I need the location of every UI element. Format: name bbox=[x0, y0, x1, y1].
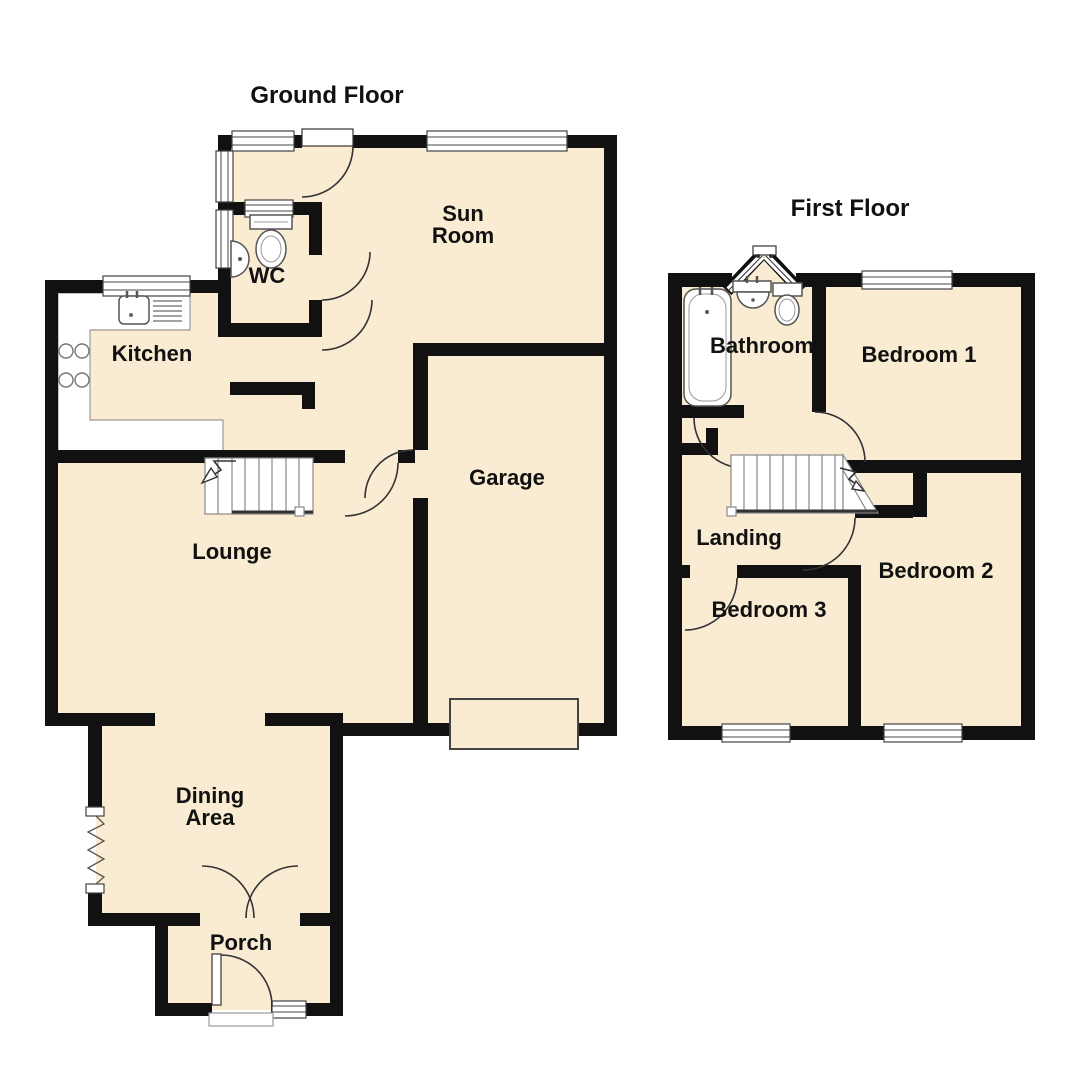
window-bedroom3 bbox=[722, 724, 790, 742]
first-floor: First Floor Bathroom Bedroom 1 Landing B… bbox=[668, 195, 1035, 742]
label-dining-line2: Area bbox=[186, 805, 236, 830]
ground-floor: Ground Floor Sun Room WC Kitchen Garage … bbox=[45, 82, 617, 1026]
label-garage: Garage bbox=[469, 465, 545, 490]
ground-floor-stairs bbox=[202, 458, 313, 516]
window-sun-room-left bbox=[232, 131, 294, 151]
window-sun-room-right bbox=[427, 131, 567, 151]
label-sun-room-line2: Room bbox=[432, 223, 494, 248]
front-door-step bbox=[209, 1013, 273, 1026]
window-bedroom1 bbox=[862, 271, 952, 289]
label-bedroom2: Bedroom 2 bbox=[879, 558, 994, 583]
label-porch: Porch bbox=[210, 930, 272, 955]
label-kitchen: Kitchen bbox=[112, 341, 193, 366]
label-wc: WC bbox=[249, 263, 286, 288]
ground-floor-title: Ground Floor bbox=[250, 82, 403, 109]
label-bedroom3: Bedroom 3 bbox=[712, 597, 827, 622]
bathroom-toilet bbox=[773, 283, 802, 325]
window-kitchen bbox=[103, 276, 190, 296]
window-side-upper bbox=[216, 151, 233, 202]
label-bedroom1: Bedroom 1 bbox=[862, 342, 977, 367]
first-floor-title: First Floor bbox=[791, 195, 910, 222]
garage-door bbox=[450, 699, 578, 749]
kitchen-sink bbox=[119, 291, 149, 324]
floor-plan-drawing: Ground Floor Sun Room WC Kitchen Garage … bbox=[0, 0, 1080, 1080]
window-porch bbox=[272, 1001, 306, 1018]
label-bathroom: Bathroom bbox=[710, 333, 814, 358]
label-landing: Landing bbox=[696, 525, 782, 550]
floor-plan-page: Ground Floor Sun Room WC Kitchen Garage … bbox=[0, 0, 1080, 1080]
window-bedroom2 bbox=[884, 724, 962, 742]
label-lounge: Lounge bbox=[192, 539, 271, 564]
